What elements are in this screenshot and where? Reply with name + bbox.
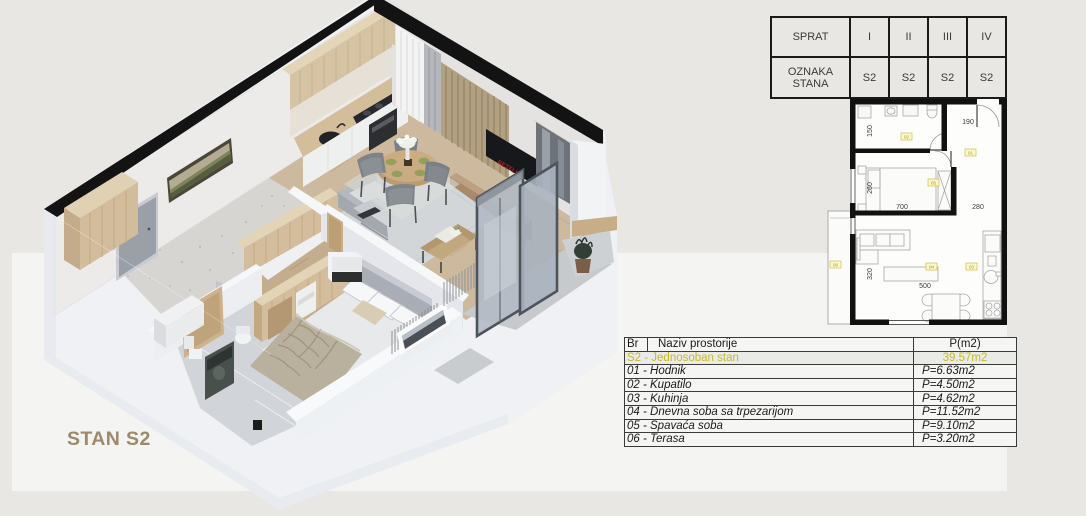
svg-text:150: 150 — [867, 125, 874, 137]
svg-text:320: 320 — [867, 268, 874, 280]
svg-text:03: 03 — [969, 264, 975, 269]
svg-text:700: 700 — [896, 204, 908, 211]
svg-text:280: 280 — [972, 204, 984, 211]
svg-text:500: 500 — [919, 283, 931, 290]
svg-text:260: 260 — [867, 182, 874, 194]
svg-text:190: 190 — [962, 119, 974, 126]
svg-text:02: 02 — [904, 134, 910, 139]
svg-text:05: 05 — [931, 180, 937, 185]
svg-text:01: 01 — [968, 150, 974, 155]
svg-text:04: 04 — [929, 264, 935, 269]
svg-text:06: 06 — [833, 262, 839, 267]
